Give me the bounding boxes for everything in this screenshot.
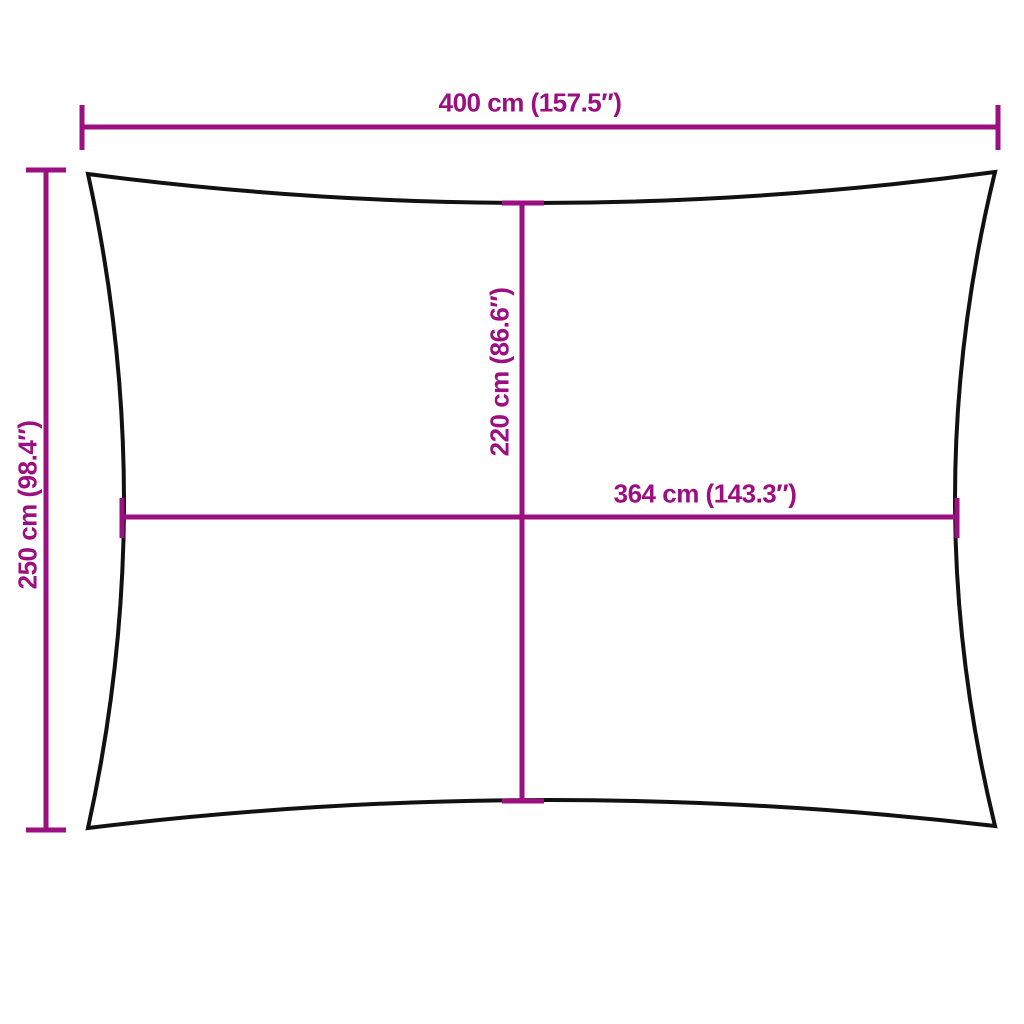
- sail-outline: [88, 172, 995, 828]
- dimension-label-top-width: 400 cm (157.5″): [439, 88, 622, 119]
- dimension-label-inner-height: 220 cm (86.6″): [485, 288, 516, 457]
- diagram-canvas: [0, 0, 1024, 1024]
- product-dimension-diagram: 400 cm (157.5″) 250 cm (98.4″) 220 cm (8…: [0, 0, 1024, 1024]
- dimension-label-left-height: 250 cm (98.4″): [13, 421, 44, 590]
- dimension-label-inner-width: 364 cm (143.3″): [614, 479, 797, 510]
- dimension-line-inner-width: [122, 498, 957, 538]
